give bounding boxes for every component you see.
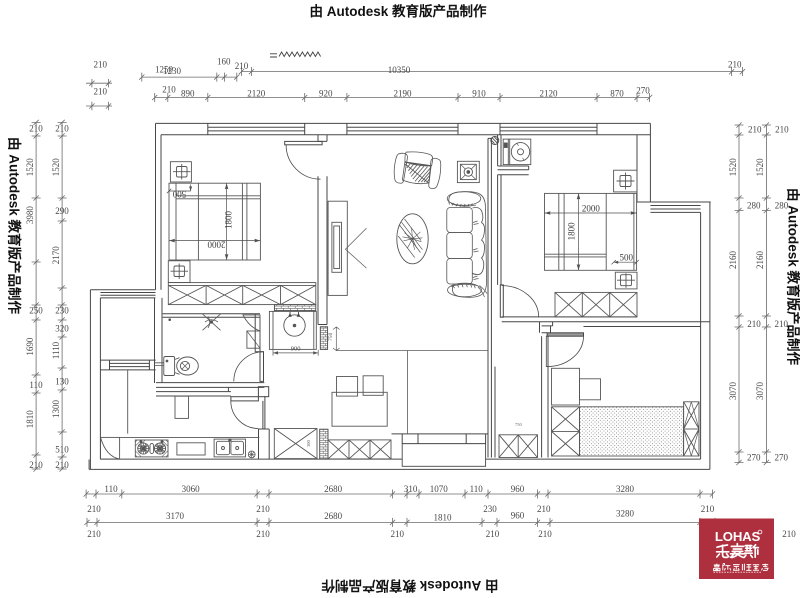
svg-text:3060: 3060 <box>182 484 201 494</box>
svg-text:210: 210 <box>93 60 107 70</box>
svg-text:3170: 3170 <box>166 511 185 521</box>
svg-text:270: 270 <box>774 453 788 463</box>
svg-text:270: 270 <box>747 453 761 463</box>
svg-text:由 Autodesk 教育版产品制作: 由 Autodesk 教育版产品制作 <box>321 578 499 594</box>
svg-text:210: 210 <box>29 124 43 134</box>
svg-text:3070: 3070 <box>755 382 765 401</box>
svg-text:960: 960 <box>511 484 525 494</box>
svg-text:1520: 1520 <box>25 158 35 177</box>
svg-text:1800: 1800 <box>567 222 577 241</box>
svg-text:110: 110 <box>104 484 118 494</box>
svg-text:1810: 1810 <box>434 513 453 523</box>
svg-text:210: 210 <box>87 529 101 539</box>
svg-text:由 Autodesk 教育版产品制作: 由 Autodesk 教育版产品制作 <box>7 137 23 315</box>
svg-text:210: 210 <box>782 529 796 539</box>
svg-text:280: 280 <box>775 201 789 211</box>
svg-text:1250: 1250 <box>155 65 174 75</box>
svg-text:210: 210 <box>87 504 101 514</box>
svg-text:2680: 2680 <box>324 484 343 494</box>
svg-text:2000: 2000 <box>582 204 601 214</box>
svg-text:210: 210 <box>748 125 762 135</box>
svg-text:210: 210 <box>256 504 270 514</box>
svg-text:960: 960 <box>511 511 525 521</box>
svg-text:1070: 1070 <box>430 484 449 494</box>
svg-text:130: 130 <box>55 377 69 387</box>
svg-text:2120: 2120 <box>540 88 559 98</box>
svg-text:1520: 1520 <box>51 158 61 177</box>
svg-text:500: 500 <box>172 189 186 199</box>
svg-text:LOHAS: LOHAS <box>715 529 761 544</box>
svg-text:10350: 10350 <box>388 65 411 75</box>
svg-text:由 Autodesk 教育版产品制作: 由 Autodesk 教育版产品制作 <box>786 188 800 366</box>
svg-text:110: 110 <box>29 380 43 390</box>
svg-text:1810: 1810 <box>25 410 35 429</box>
svg-text:3070: 3070 <box>728 382 738 401</box>
svg-text:270: 270 <box>636 86 650 96</box>
svg-text:310: 310 <box>404 484 418 494</box>
svg-text:2000: 2000 <box>207 240 226 250</box>
svg-text:2160: 2160 <box>728 251 738 270</box>
svg-text:210: 210 <box>747 319 761 329</box>
svg-text:210: 210 <box>29 460 43 470</box>
svg-text:1690: 1690 <box>25 337 35 356</box>
svg-text:210: 210 <box>486 529 500 539</box>
svg-text:910: 910 <box>472 88 486 98</box>
svg-text:250: 250 <box>29 306 43 316</box>
svg-text:3980: 3980 <box>25 206 35 225</box>
svg-text:300: 300 <box>306 440 311 448</box>
svg-text:210: 210 <box>775 125 789 135</box>
svg-text:1800: 1800 <box>224 211 234 230</box>
svg-text:500: 500 <box>619 253 633 263</box>
svg-text:870: 870 <box>610 88 624 98</box>
svg-text:750: 750 <box>515 422 523 427</box>
svg-text:280: 280 <box>747 201 761 211</box>
svg-text:210: 210 <box>701 504 715 514</box>
svg-text:920: 920 <box>319 88 333 98</box>
svg-text:210: 210 <box>537 504 551 514</box>
svg-text:2170: 2170 <box>51 246 61 265</box>
svg-text:3280: 3280 <box>616 509 635 519</box>
svg-text:210: 210 <box>256 529 270 539</box>
svg-text:900: 900 <box>291 346 301 353</box>
svg-text:890: 890 <box>181 88 195 98</box>
svg-text:230: 230 <box>483 504 497 514</box>
svg-text:2120: 2120 <box>247 88 266 98</box>
svg-text:210: 210 <box>775 319 789 329</box>
svg-text:210: 210 <box>390 529 404 539</box>
svg-text:1520: 1520 <box>755 158 765 177</box>
svg-text:210: 210 <box>55 124 69 134</box>
svg-text:3280: 3280 <box>616 484 635 494</box>
svg-text:210: 210 <box>93 87 107 97</box>
svg-text:2160: 2160 <box>755 251 765 270</box>
svg-text:510: 510 <box>55 445 69 455</box>
svg-text:110: 110 <box>470 484 484 494</box>
svg-text:2190: 2190 <box>394 88 413 98</box>
svg-text:290: 290 <box>55 206 69 216</box>
svg-text:1520: 1520 <box>728 158 738 177</box>
svg-text:210: 210 <box>538 529 552 539</box>
svg-text:210: 210 <box>162 85 176 95</box>
svg-text:320: 320 <box>55 324 69 334</box>
svg-text:210: 210 <box>235 61 249 71</box>
svg-text:750: 750 <box>328 333 334 342</box>
svg-text:210: 210 <box>728 60 742 70</box>
svg-text:210: 210 <box>55 460 69 470</box>
svg-text:230: 230 <box>55 306 69 316</box>
svg-text:2680: 2680 <box>324 511 343 521</box>
svg-text:1300: 1300 <box>51 400 61 419</box>
svg-text:由 Autodesk 教育版产品制作: 由 Autodesk 教育版产品制作 <box>309 3 487 19</box>
svg-text:160: 160 <box>217 57 231 67</box>
svg-text:1110: 1110 <box>51 341 61 359</box>
